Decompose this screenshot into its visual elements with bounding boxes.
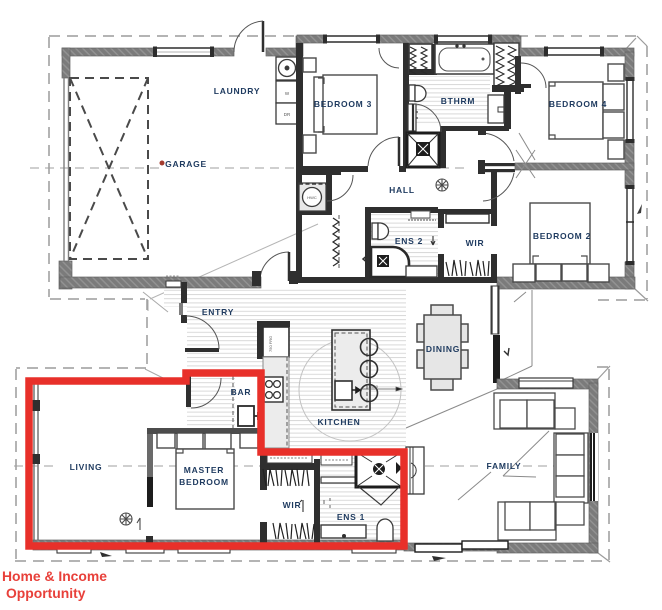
svg-text:BEDROOM 4: BEDROOM 4 [549, 99, 607, 109]
svg-text:Opportunity: Opportunity [6, 585, 86, 601]
svg-text:BEDROOM 2: BEDROOM 2 [533, 231, 591, 241]
svg-text:GARAGE: GARAGE [165, 159, 207, 169]
svg-text:BAR: BAR [231, 387, 252, 397]
svg-text:HALL: HALL [389, 185, 415, 195]
svg-text:HWC: HWC [307, 195, 317, 200]
svg-text:DR: DR [284, 112, 291, 117]
svg-text:Home & Income: Home & Income [2, 568, 107, 584]
svg-text:KITCHEN: KITCHEN [317, 417, 360, 427]
svg-text:DINING: DINING [426, 344, 460, 354]
svg-text:MASTER: MASTER [184, 465, 224, 475]
svg-text:ENS 1: ENS 1 [337, 512, 365, 522]
svg-text:1.500: 1.500 [368, 384, 379, 389]
svg-text:WIR: WIR [283, 500, 302, 510]
svg-text:ENTRY: ENTRY [202, 307, 234, 317]
svg-text:LAUNDRY: LAUNDRY [214, 86, 261, 96]
svg-text:BTHRM: BTHRM [441, 96, 475, 106]
svg-text:BEDROOM 3: BEDROOM 3 [314, 99, 372, 109]
svg-text:BEDROOM: BEDROOM [179, 477, 229, 487]
svg-text:FAMILY: FAMILY [487, 461, 522, 471]
svg-text:LIVING: LIVING [70, 462, 103, 472]
svg-text:ENS 2: ENS 2 [395, 236, 423, 246]
svg-text:WIR: WIR [466, 238, 485, 248]
svg-text:750 FRG: 750 FRG [268, 336, 273, 352]
